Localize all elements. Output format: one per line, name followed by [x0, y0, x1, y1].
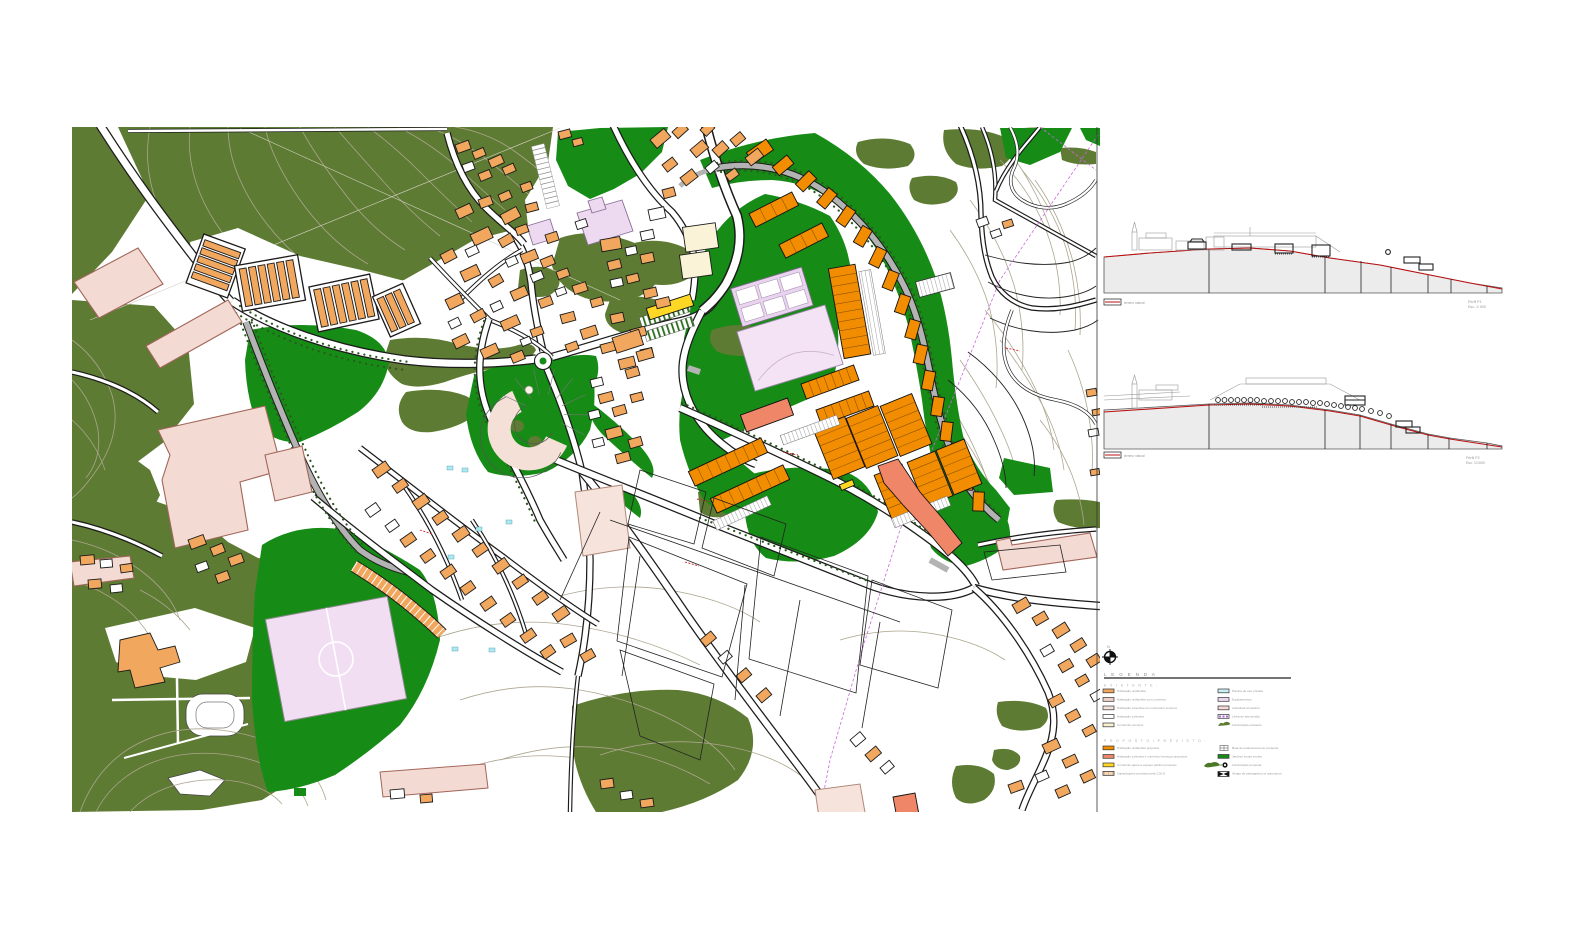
svg-text:Comércio/ serviços: Comércio/ serviços: [1117, 723, 1144, 727]
svg-text:Habitação colectiva e comércio: Habitação colectiva e comércio/ serviços…: [1117, 755, 1188, 759]
svg-text:Abrigo de passageiros p/ autoc: Abrigo de passageiros p/ autocarros: [1232, 772, 1282, 776]
svg-text:Habitação unifamiliar proposta: Habitação unifamiliar proposta: [1117, 746, 1159, 750]
svg-text:Arborização proposta: Arborização proposta: [1232, 763, 1262, 767]
svg-text:Habitação colectiva com comérc: Habitação colectiva com comércio/ serviç…: [1117, 706, 1177, 710]
svg-text:Comércio/ apoio a espaço públi: Comércio/ apoio a espaço público propost…: [1117, 763, 1177, 767]
svg-text:Equipamentos: Equipamentos: [1232, 698, 1252, 702]
svg-text:Piscina de uso privado: Piscina de uso privado: [1232, 689, 1263, 693]
svg-text:L E G E N D A: L E G E N D A: [1104, 672, 1157, 677]
svg-text:Perfil P1: Perfil P1: [1468, 300, 1482, 304]
svg-text:Jardins/ zonas verdes: Jardins/ zonas verdes: [1232, 755, 1263, 759]
svg-text:Implantações previstas pela C.: Implantações previstas pela C.M.G.: [1117, 772, 1166, 776]
svg-text:N: N: [1107, 644, 1110, 649]
svg-text:Habitação unifamiliar: Habitação unifamiliar: [1117, 689, 1146, 693]
svg-text:P R O P O S T O / P R E V I S: P R O P O S T O / P R E V I S T O :: [1104, 739, 1207, 743]
svg-text:Linha de alta tensão: Linha de alta tensão: [1232, 715, 1260, 719]
svg-text:Esc. 1/1000: Esc. 1/1000: [1466, 461, 1485, 465]
svg-text:Habitação colectiva: Habitação colectiva: [1117, 715, 1144, 719]
svg-text:Arborização existente: Arborização existente: [1232, 723, 1262, 727]
svg-text:Habitação unifamiliar com comé: Habitação unifamiliar com comércio: [1117, 698, 1166, 702]
svg-text:terreno natural: terreno natural: [1124, 454, 1145, 458]
svg-text:terreno natural: terreno natural: [1124, 301, 1145, 305]
svg-text:Industrial/ armazéns: Industrial/ armazéns: [1232, 706, 1260, 710]
svg-text:Perfil P2: Perfil P2: [1466, 456, 1480, 460]
svg-text:Baía de estacionamento propost: Baía de estacionamento proposta: [1232, 746, 1279, 750]
svg-text:Esc. 1/ 500: Esc. 1/ 500: [1468, 305, 1486, 309]
svg-text:E X I S T E N T E :: E X I S T E N T E :: [1104, 684, 1159, 688]
